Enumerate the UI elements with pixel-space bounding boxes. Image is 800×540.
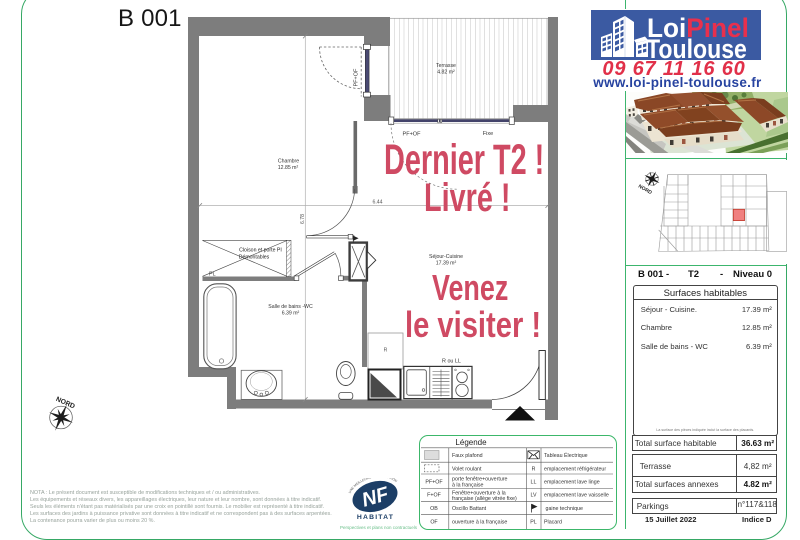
svg-text:OB: OB [430,506,438,512]
svg-text:Salle de bains -WC: Salle de bains -WC [268,304,313,310]
svg-text:gaine technique: gaine technique [546,506,583,512]
svg-text:PF+OF: PF+OF [425,479,443,485]
svg-text:F+OF: F+OF [427,492,441,498]
svg-text:6.39 m²: 6.39 m² [282,311,300,317]
svg-text:R: R [384,348,388,354]
svg-text:12.85 m²: 12.85 m² [278,165,299,171]
svg-text:Oscillo Battant: Oscillo Battant [452,506,487,512]
svg-text:Faux plafond: Faux plafond [452,453,483,459]
svg-text:emplacement lave linge: emplacement lave linge [544,479,600,485]
svg-text:LL: LL [531,479,537,485]
svg-text:HABITAT: HABITAT [357,514,394,521]
svg-text:PL: PL [209,271,216,277]
svg-text:4.82 m²: 4.82 m² [437,70,455,76]
svg-text:R ou LL: R ou LL [442,359,461,365]
svg-text:Chambre: Chambre [278,159,299,165]
svg-text:Placard: Placard [544,519,562,525]
svg-text:PF+OF: PF+OF [353,68,359,87]
svg-text:Légende: Légende [455,438,487,447]
svg-text:Cloison et porte PI: Cloison et porte PI [239,247,282,253]
svg-text:Volet roulant: Volet roulant [452,466,482,472]
svg-text:française (allège vitrée fixe): française (allège vitrée fixe) [452,496,517,502]
svg-text:OF: OF [430,519,438,525]
svg-text:6.44: 6.44 [372,200,382,206]
svg-text:Démontables: Démontables [239,254,270,260]
svg-text:6.78: 6.78 [300,214,306,224]
svg-text:LV: LV [530,492,537,498]
svg-text:R: R [532,466,536,472]
svg-text:Séjour-Cuisine: Séjour-Cuisine [429,254,463,260]
svg-text:à la française: à la française [452,482,484,488]
svg-text:PL: PL [530,519,537,525]
svg-text:Tableau Électrique: Tableau Électrique [544,452,588,459]
svg-text:ouverture à la française: ouverture à la française [452,519,507,525]
svg-text:emplacement réfrigérateur: emplacement réfrigérateur [544,466,606,472]
svg-text:17.39 m²: 17.39 m² [436,260,457,266]
svg-text:Terrasse: Terrasse [436,63,456,69]
svg-text:emplacement lave vaisselle: emplacement lave vaisselle [544,492,609,498]
